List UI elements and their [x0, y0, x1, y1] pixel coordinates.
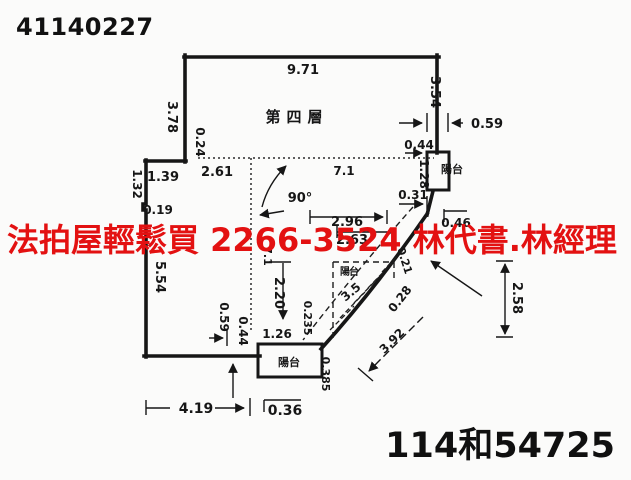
dim-left-step-v: 1.32 — [130, 169, 144, 199]
dim-balcony-bottom-height: 0.385 — [319, 357, 332, 392]
document-number: 41140227 — [16, 13, 154, 41]
dim-arc-mid: 0.28 — [385, 283, 414, 315]
dim-room-height: 2.20 — [271, 277, 286, 309]
advertisement-watermark: 法拍屋輕鬆買 2266-3524 林代書.林經理 — [7, 215, 617, 261]
dim-left-lower: 5.54 — [152, 261, 167, 293]
dim-arc-chord-height: 2.58 — [509, 282, 524, 314]
dim-right-upper: 3.54 — [427, 76, 442, 108]
dim-step-width: 2.61 — [201, 165, 233, 180]
dim-balcony-top-offset: 0.44 — [404, 138, 434, 152]
floor-plan-page: 9.71 第四層 3.78 0.24 1.32 1.39 2.61 0.19 5… — [0, 0, 631, 480]
case-number: 114和54725 — [385, 417, 615, 468]
dim-left-step-h: 1.39 — [147, 170, 179, 185]
dim-left-upper: 3.78 — [164, 101, 179, 133]
balcony-bottom-label: 陽台 — [278, 355, 300, 369]
balcony-arc-label: 陽台 — [340, 265, 359, 278]
dim-bottom-left-offset: 0.59 — [217, 302, 231, 332]
dim-bottom-small: 0.36 — [268, 403, 303, 419]
floor-label: 第四層 — [265, 108, 328, 126]
dim-interior-width: 7.1 — [333, 164, 354, 178]
dim-arc-outer: 3.92 — [377, 326, 408, 357]
dim-bottom-width: 4.19 — [179, 401, 214, 417]
dim-balcony-right-height: 1.28 — [417, 159, 431, 189]
dim-top-width: 9.71 — [287, 63, 319, 78]
dim-balcony-bottom-offset: 0.31 — [398, 188, 428, 202]
dim-arc-inner: 3.5 — [338, 280, 363, 304]
dim-left-inset: 0.24 — [193, 127, 207, 157]
angle-label: 90° — [288, 191, 313, 206]
dim-balcony-bottom-width: 1.26 — [262, 327, 292, 341]
dim-bottom-mid-offset: 0.44 — [236, 316, 250, 346]
balcony-right-label: 陽台 — [441, 162, 463, 176]
dim-right-offset: 0.59 — [471, 117, 503, 132]
dim-room-offset: 0.235 — [301, 301, 314, 336]
